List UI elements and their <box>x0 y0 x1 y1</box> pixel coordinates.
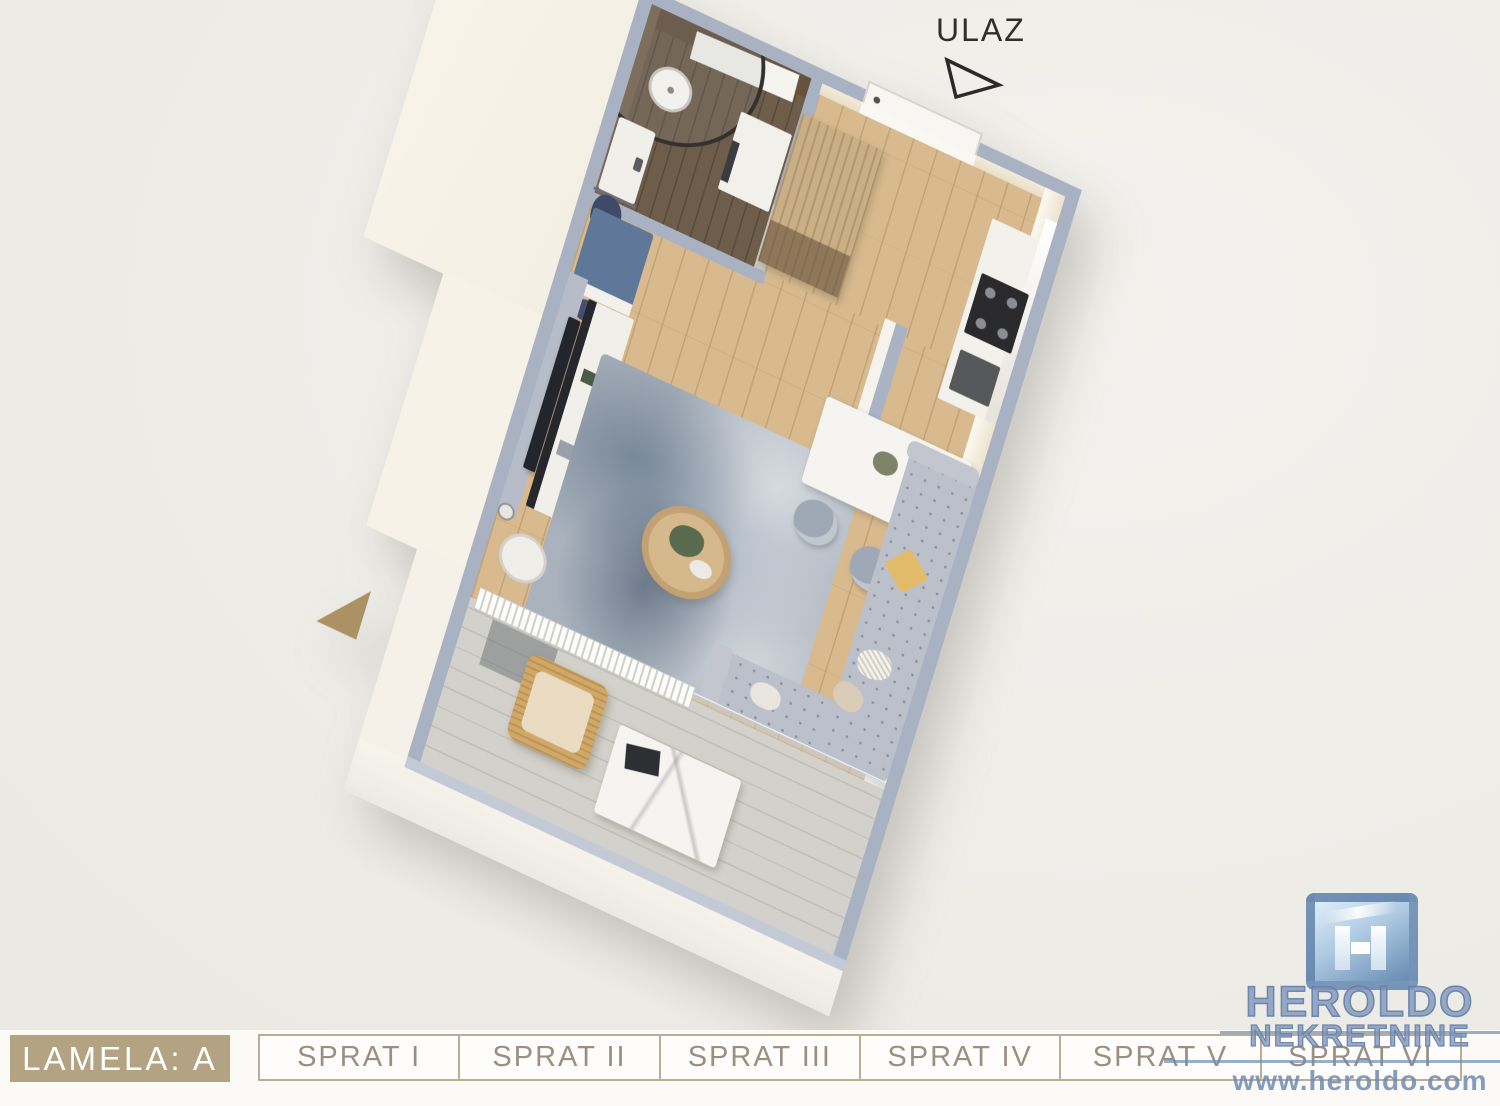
tab-sprat-2[interactable]: SPRAT II <box>460 1036 660 1079</box>
floor-tabs: SPRAT I SPRAT II SPRAT III SPRAT IV SPRA… <box>258 1034 1462 1081</box>
tab-sprat-5[interactable]: SPRAT V <box>1061 1036 1261 1079</box>
lamela-badge: LAMELA: A <box>10 1035 230 1082</box>
floorplan-render: ULAZ <box>0 0 1500 1030</box>
entrance-label: ULAZ <box>936 12 1026 49</box>
real-estate-floorplan-page: ULAZ <box>0 0 1500 1106</box>
apartment-plan <box>424 4 1078 948</box>
entrance-arrow-icon <box>936 52 1016 108</box>
tab-sprat-4[interactable]: SPRAT IV <box>861 1036 1061 1079</box>
tab-sprat-6[interactable]: SPRAT VI <box>1262 1036 1460 1079</box>
tab-sprat-1[interactable]: SPRAT I <box>260 1036 460 1079</box>
floor-selector-bar: LAMELA: A SPRAT I SPRAT II SPRAT III SPR… <box>0 1030 1500 1106</box>
wall-accent-triangle <box>316 573 371 640</box>
tab-sprat-3[interactable]: SPRAT III <box>661 1036 861 1079</box>
